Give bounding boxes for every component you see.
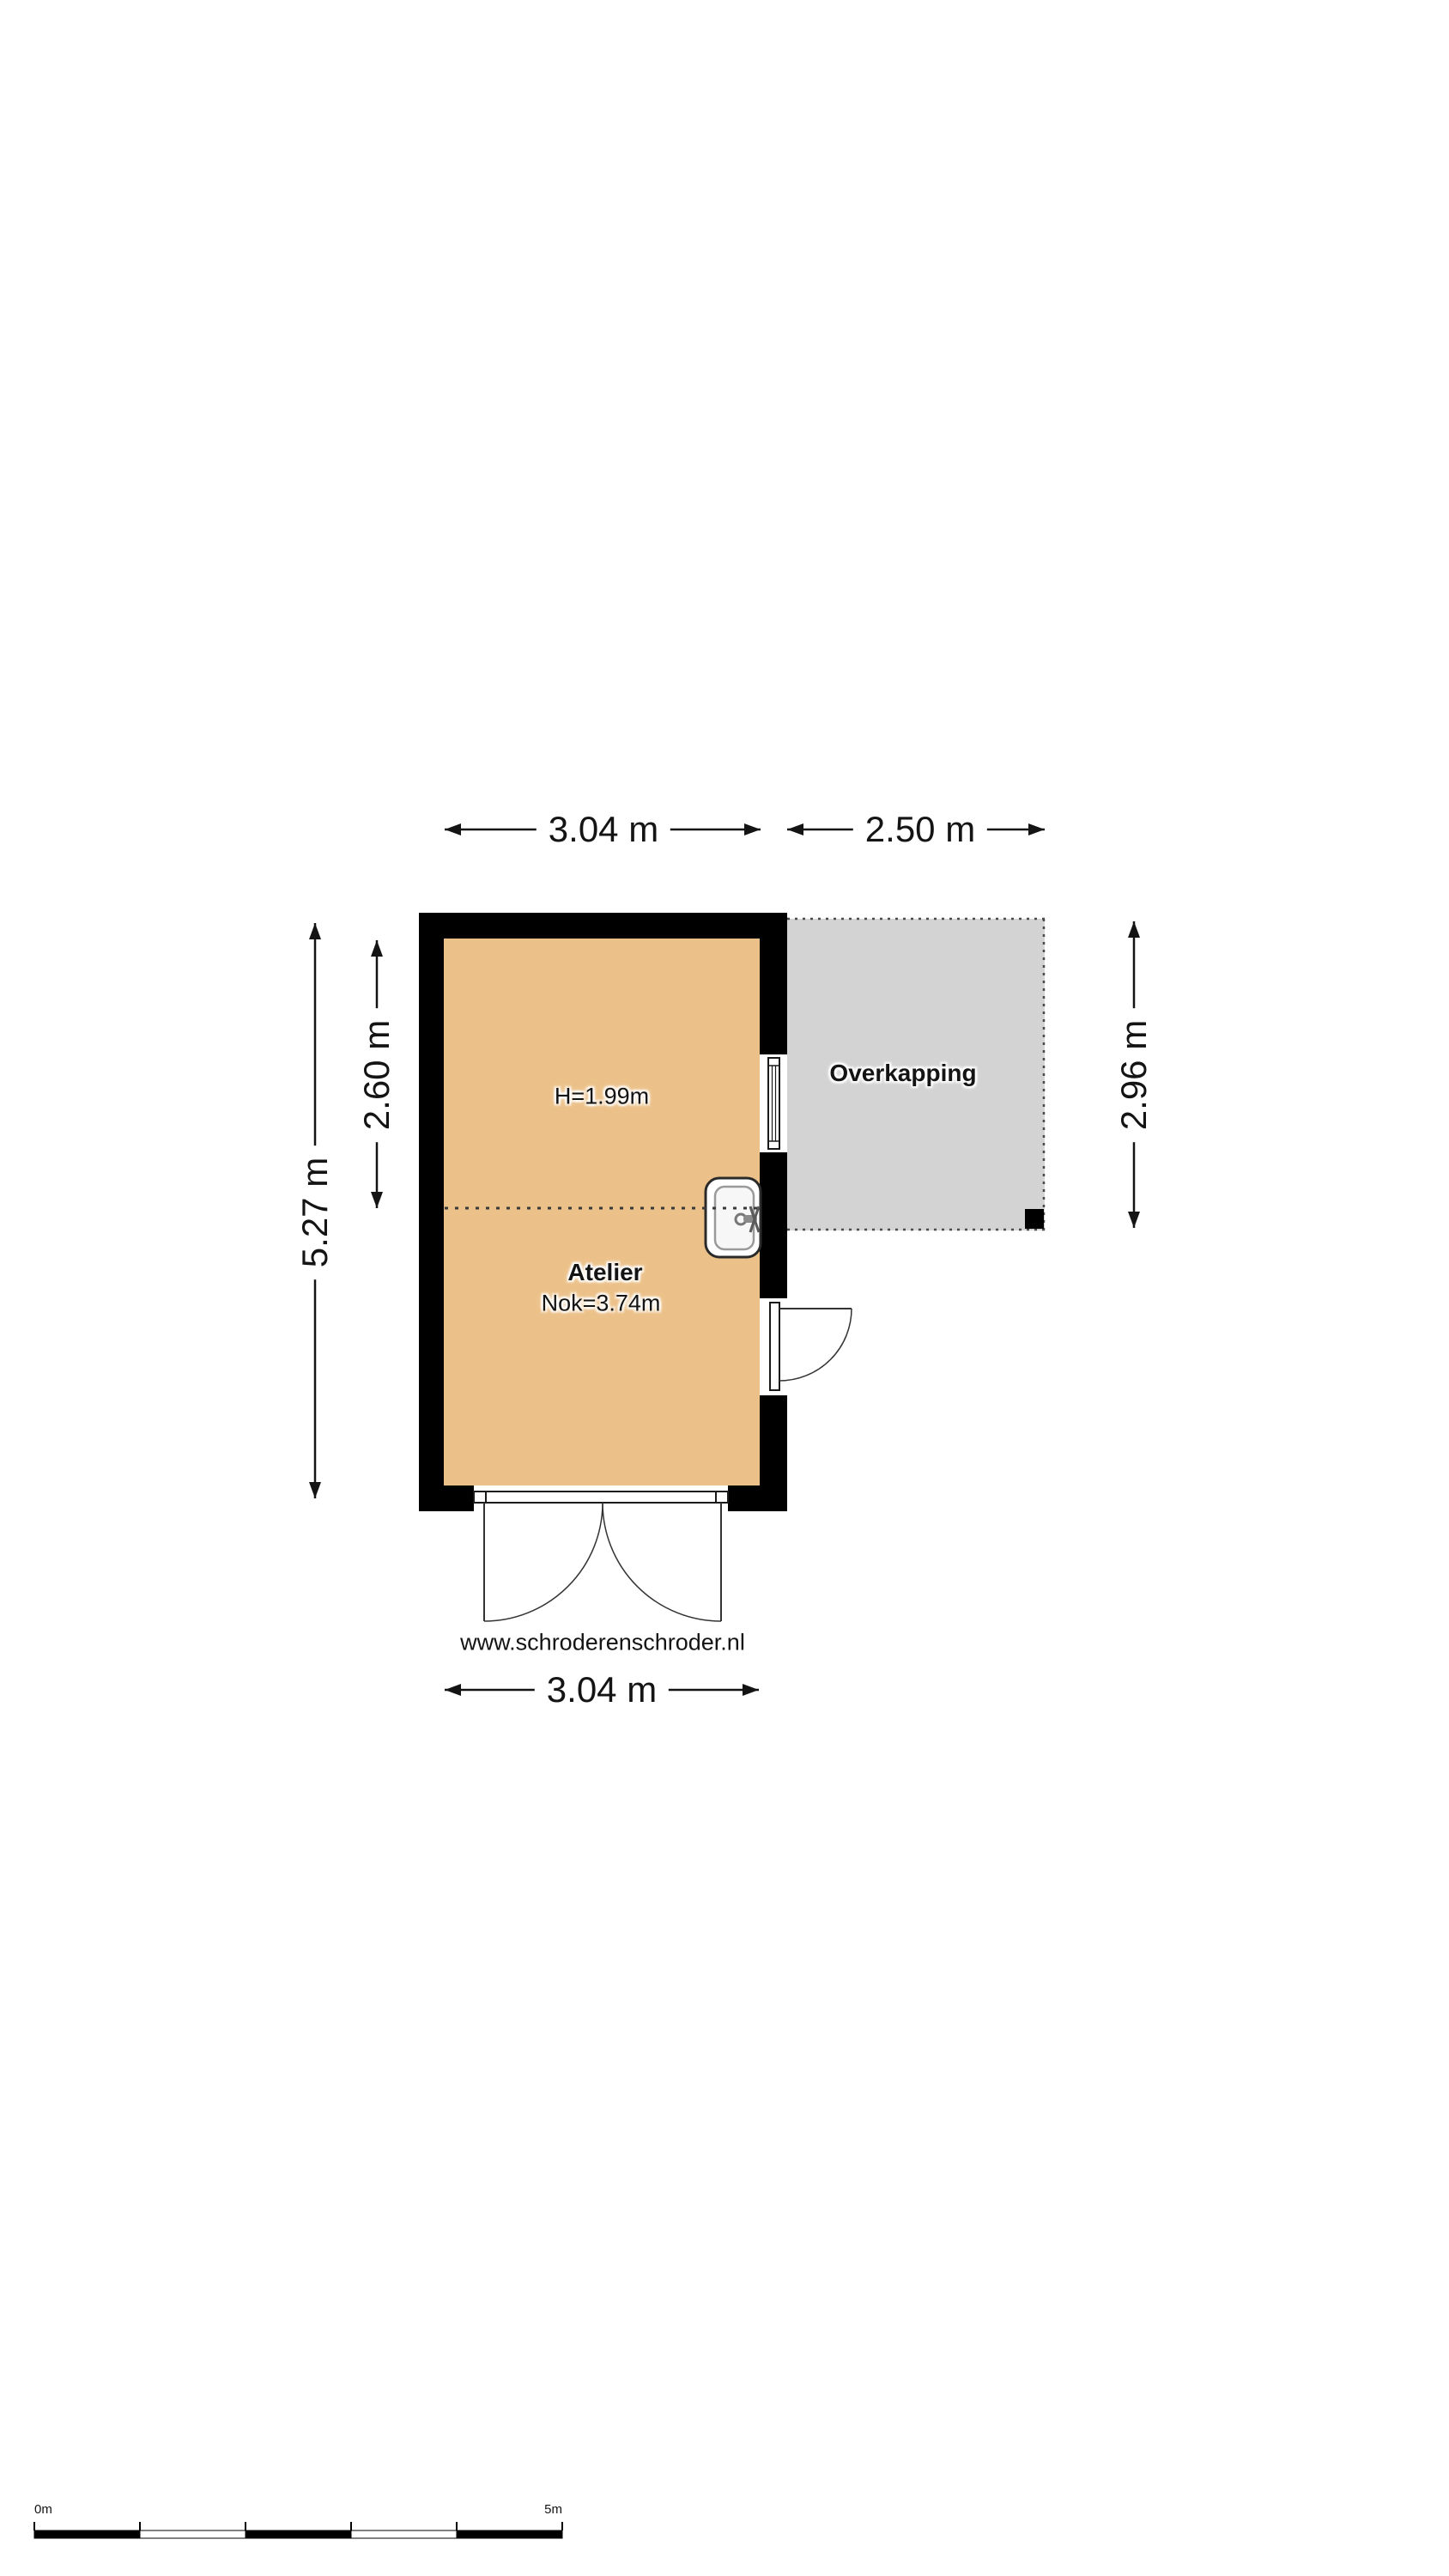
double-door-swing-arc-right (603, 1503, 721, 1621)
dim-arrowhead (1128, 1212, 1140, 1228)
floor-plan-drawing (0, 0, 1449, 2576)
dim-label-left-upper-height: 2.60 m (357, 1008, 397, 1142)
dim-arrowhead (743, 1684, 759, 1696)
dim-label-top-canopy-width: 2.50 m (853, 810, 987, 849)
canopy-post (1025, 1209, 1044, 1229)
wall-top (419, 913, 787, 939)
atelier-ceiling-height-label: H=1.99m (555, 1085, 649, 1109)
wall-right-upper (760, 913, 787, 1054)
dim-arrowhead (445, 823, 461, 835)
double-door-sill (474, 1492, 728, 1503)
dim-label-bottom-atelier-width: 3.04 m (535, 1670, 669, 1710)
dim-label-left-total-height: 5.27 m (295, 1145, 335, 1279)
atelier-room-label: Atelier (567, 1261, 642, 1285)
wall-left (419, 913, 444, 1511)
scale-bar-segment-3 (246, 2530, 351, 2538)
floor-plan-canvas: 3.04 m 2.50 m 5.27 m 2.60 m 2.96 m 3.04 … (0, 0, 1449, 2576)
dim-label-top-atelier-width: 3.04 m (537, 810, 670, 849)
double-door-swing-arc-left (484, 1503, 603, 1621)
wall-right-middle (760, 1152, 787, 1298)
dim-arrowhead (309, 923, 321, 939)
scale-bar-segment-5 (457, 2530, 562, 2538)
dim-arrowhead (309, 1482, 321, 1498)
dim-arrowhead (371, 940, 383, 957)
dim-arrowhead (744, 823, 761, 835)
scale-bar-segment-4 (351, 2530, 457, 2538)
right-door-swing-arc (779, 1309, 852, 1381)
wall-bottom-left (419, 1485, 474, 1511)
scale-bar-segment-1 (34, 2530, 140, 2538)
window-frame (768, 1058, 779, 1149)
dim-label-right-canopy-height: 2.96 m (1114, 1008, 1154, 1142)
right-door-jamb (770, 1303, 779, 1390)
scale-bar-segment-2 (140, 2530, 246, 2538)
dim-arrowhead (445, 1684, 461, 1696)
canopy-room-label: Overkapping (829, 1061, 976, 1085)
double-door-sill-cap-left (474, 1492, 486, 1503)
scale-bar-start-label: 0m (34, 2503, 52, 2516)
dim-arrowhead (1128, 921, 1140, 938)
dim-arrowhead (1028, 823, 1045, 835)
scale-bar-end-label: 5m (544, 2503, 562, 2516)
dim-arrowhead (371, 1192, 383, 1208)
website-watermark: www.schroderenschroder.nl (460, 1631, 745, 1655)
atelier-ridge-height-label: Nok=3.74m (542, 1292, 661, 1315)
double-door-sill-cap-right (716, 1492, 728, 1503)
wall-bottom-right (728, 1485, 787, 1511)
dim-arrowhead (787, 823, 803, 835)
